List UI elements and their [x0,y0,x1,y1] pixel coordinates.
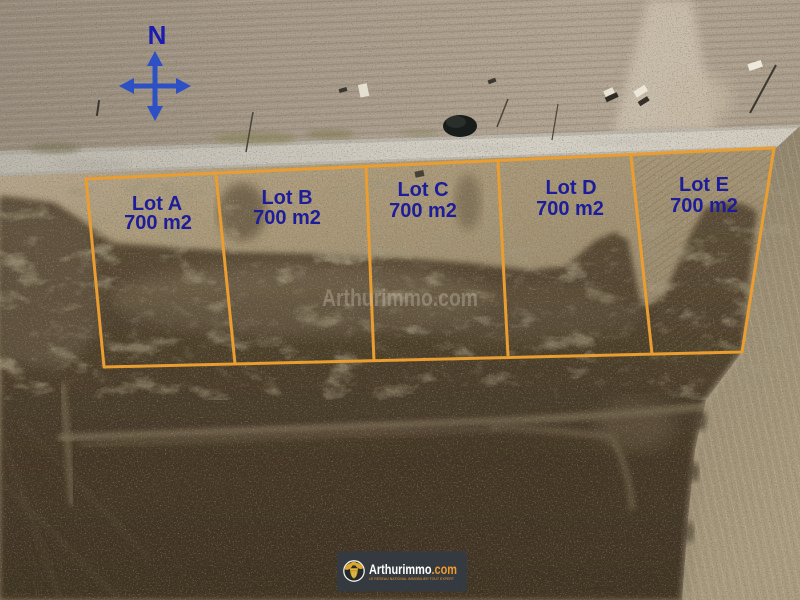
svg-text:Lot E: Lot E [679,174,729,196]
svg-text:Lot C: Lot C [397,179,448,201]
svg-text:700 m2: 700 m2 [389,200,457,222]
svg-text:Arthurimmo.com: Arthurimmo.com [369,561,457,577]
svg-text:Lot D: Lot D [545,177,596,199]
svg-text:N: N [148,20,167,50]
svg-text:700 m2: 700 m2 [536,198,604,220]
svg-text:700 m2: 700 m2 [670,195,738,217]
svg-text:Arthurimmo.com: Arthurimmo.com [322,285,478,312]
svg-text:700 m2: 700 m2 [124,212,192,234]
svg-text:Lot B: Lot B [261,187,312,209]
svg-text:LE RESEAU NATIONAL IMMOBILIER: LE RESEAU NATIONAL IMMOBILIER TOUT EXPER… [369,576,454,581]
svg-text:700 m2: 700 m2 [253,207,321,229]
